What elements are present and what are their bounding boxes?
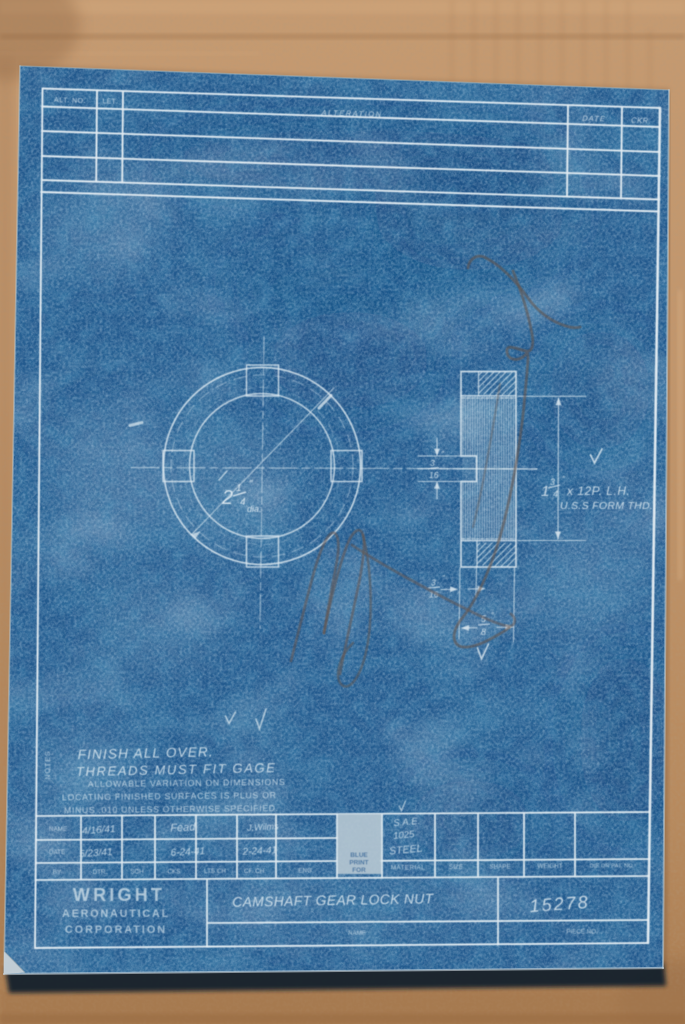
svg-text:NAME: NAME: [49, 826, 67, 833]
svg-text:MATERIAL: MATERIAL: [391, 865, 425, 872]
svg-text:FINISH ALL OVER.: FINISH ALL OVER.: [77, 744, 214, 762]
svg-text:1: 1: [541, 483, 549, 500]
svg-text:DTR.: DTR.: [93, 869, 108, 876]
svg-text:SHAPE: SHAPE: [489, 864, 510, 871]
svg-text:NOTES: NOTES: [45, 750, 52, 779]
svg-text:1025: 1025: [393, 829, 416, 842]
svg-text:4: 4: [240, 497, 246, 508]
svg-text:ALLOWABLE VARIATION ON DIMENSI: ALLOWABLE VARIATION ON DIMENSIONS: [88, 777, 286, 789]
svg-text:15278: 15278: [529, 892, 590, 916]
svg-text:2-24-41: 2-24-41: [241, 845, 277, 858]
svg-text:ENG.: ENG.: [298, 868, 314, 875]
svg-text:BLUE: BLUE: [350, 852, 368, 859]
svg-text:U.S.S FORM THD.: U.S.S FORM THD.: [560, 500, 653, 512]
svg-text:″: ″: [249, 479, 253, 490]
svg-text:3: 3: [550, 477, 555, 487]
svg-text:4: 4: [553, 489, 558, 499]
svg-text:2: 2: [221, 487, 233, 509]
svg-text:NAME: NAME: [348, 930, 366, 937]
svg-text:AERONAUTICAL: AERONAUTICAL: [62, 908, 170, 920]
svg-text:x 12P. L.H.: x 12P. L.H.: [566, 484, 630, 498]
svg-text:CF. CH.: CF. CH.: [244, 868, 266, 875]
svg-text:16: 16: [429, 470, 439, 480]
svg-text:LTS.CH: LTS.CH: [204, 868, 226, 875]
svg-text:DATE: DATE: [49, 849, 65, 856]
svg-text:FOR: FOR: [352, 867, 366, 874]
svg-text:SIZE: SIZE: [449, 864, 463, 871]
svg-text:PRINT: PRINT: [349, 860, 368, 867]
svg-text:J.Wilms: J.Wilms: [246, 821, 279, 833]
svg-text:1: 1: [236, 483, 242, 494]
svg-text:BY: BY: [53, 869, 62, 876]
svg-text:CORPORATION: CORPORATION: [65, 924, 167, 936]
svg-text:WRIGHT: WRIGHT: [73, 885, 165, 905]
svg-text:CKR.: CKR.: [631, 116, 651, 126]
svg-text:LET.: LET.: [102, 98, 117, 105]
svg-text:3: 3: [431, 578, 436, 588]
svg-text:4/16/41: 4/16/41: [82, 824, 116, 837]
svg-text:DIE OR PAT. NO.: DIE OR PAT. NO.: [590, 864, 635, 870]
svg-text:Fead: Fead: [170, 821, 197, 834]
svg-text:8: 8: [481, 627, 486, 637]
svg-text:CKS: CKS: [168, 869, 181, 876]
svg-text:6-24-41: 6-24-41: [170, 846, 205, 859]
svg-text:SCH: SCH: [130, 869, 144, 876]
svg-text:DATE: DATE: [582, 114, 606, 124]
svg-text:ALT. NO.: ALT. NO.: [54, 97, 86, 105]
svg-text:5/23/41: 5/23/41: [79, 847, 113, 860]
svg-text:dia.: dia.: [247, 504, 262, 514]
svg-text:S.A.E.: S.A.E.: [393, 816, 421, 829]
svg-text:PIECE NO.: PIECE NO.: [566, 929, 598, 936]
svg-text:3: 3: [430, 458, 435, 468]
svg-text:WEIGHT: WEIGHT: [537, 863, 562, 870]
